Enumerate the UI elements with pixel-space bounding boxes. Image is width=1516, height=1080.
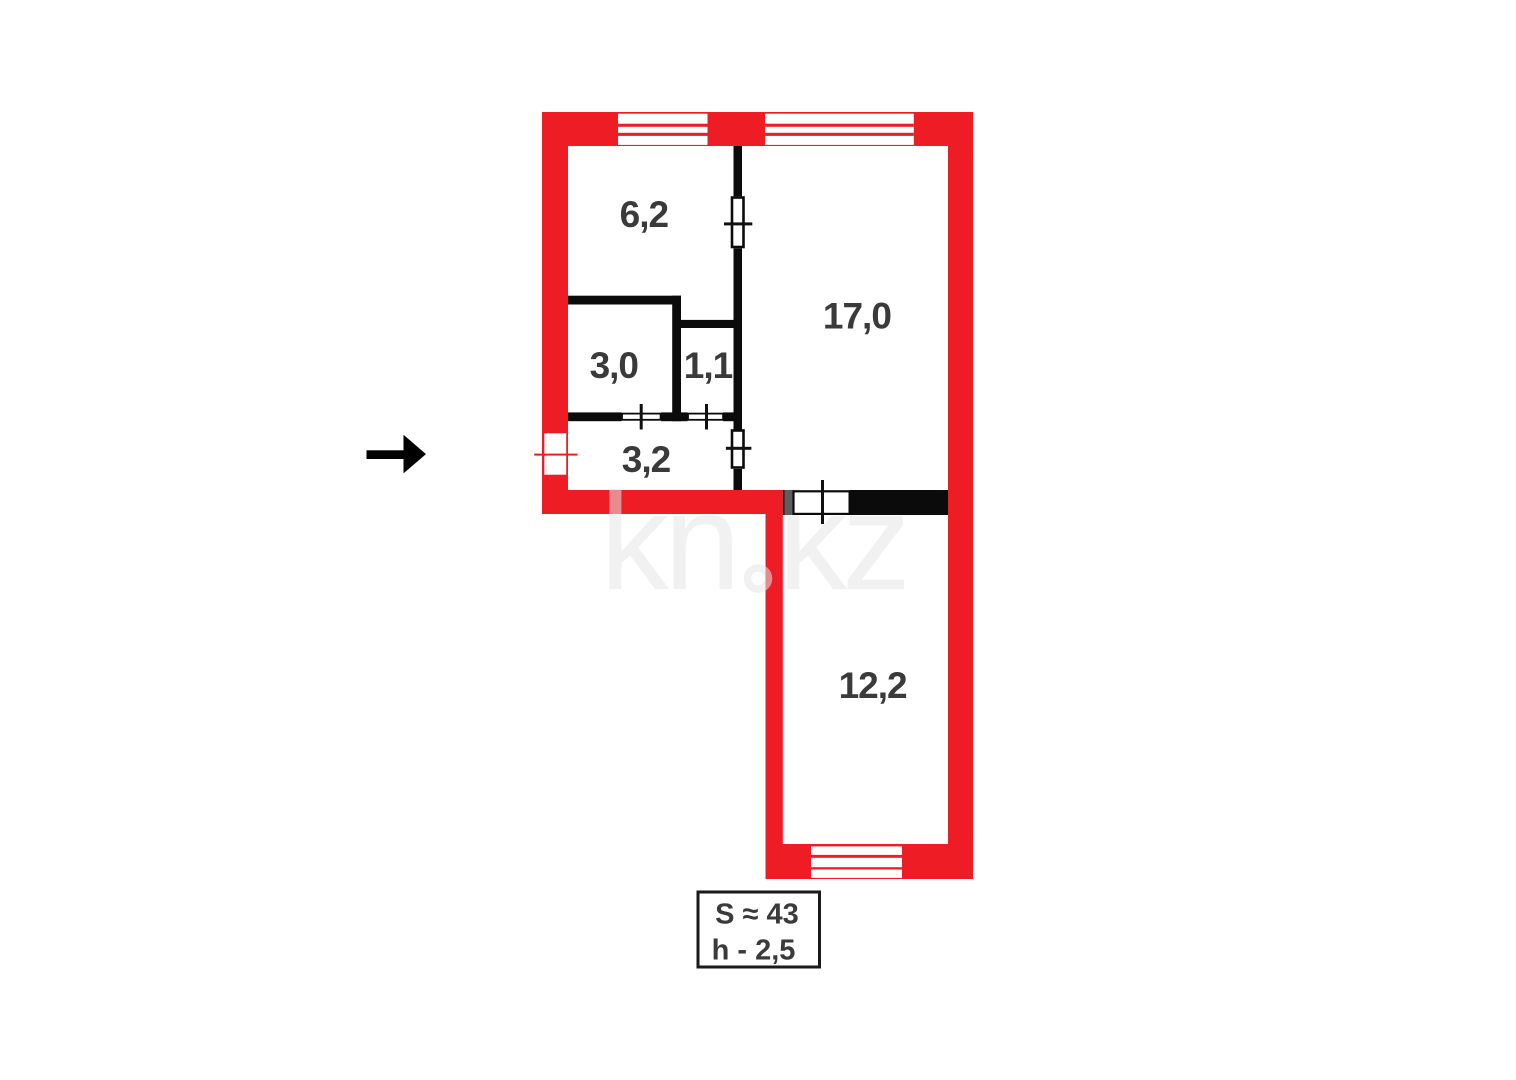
svg-text:kz: kz bbox=[778, 465, 906, 619]
svg-text:S ≈ 43: S ≈ 43 bbox=[715, 899, 799, 931]
svg-text:6,2: 6,2 bbox=[620, 194, 669, 235]
svg-text:kn: kn bbox=[600, 465, 736, 619]
svg-text:3,2: 3,2 bbox=[622, 439, 671, 480]
svg-text:12,2: 12,2 bbox=[839, 665, 907, 706]
svg-text:3,0: 3,0 bbox=[590, 345, 639, 386]
svg-text:h - 2,5: h - 2,5 bbox=[712, 934, 796, 966]
svg-text:17,0: 17,0 bbox=[823, 295, 891, 336]
svg-text:1,1: 1,1 bbox=[684, 345, 733, 386]
